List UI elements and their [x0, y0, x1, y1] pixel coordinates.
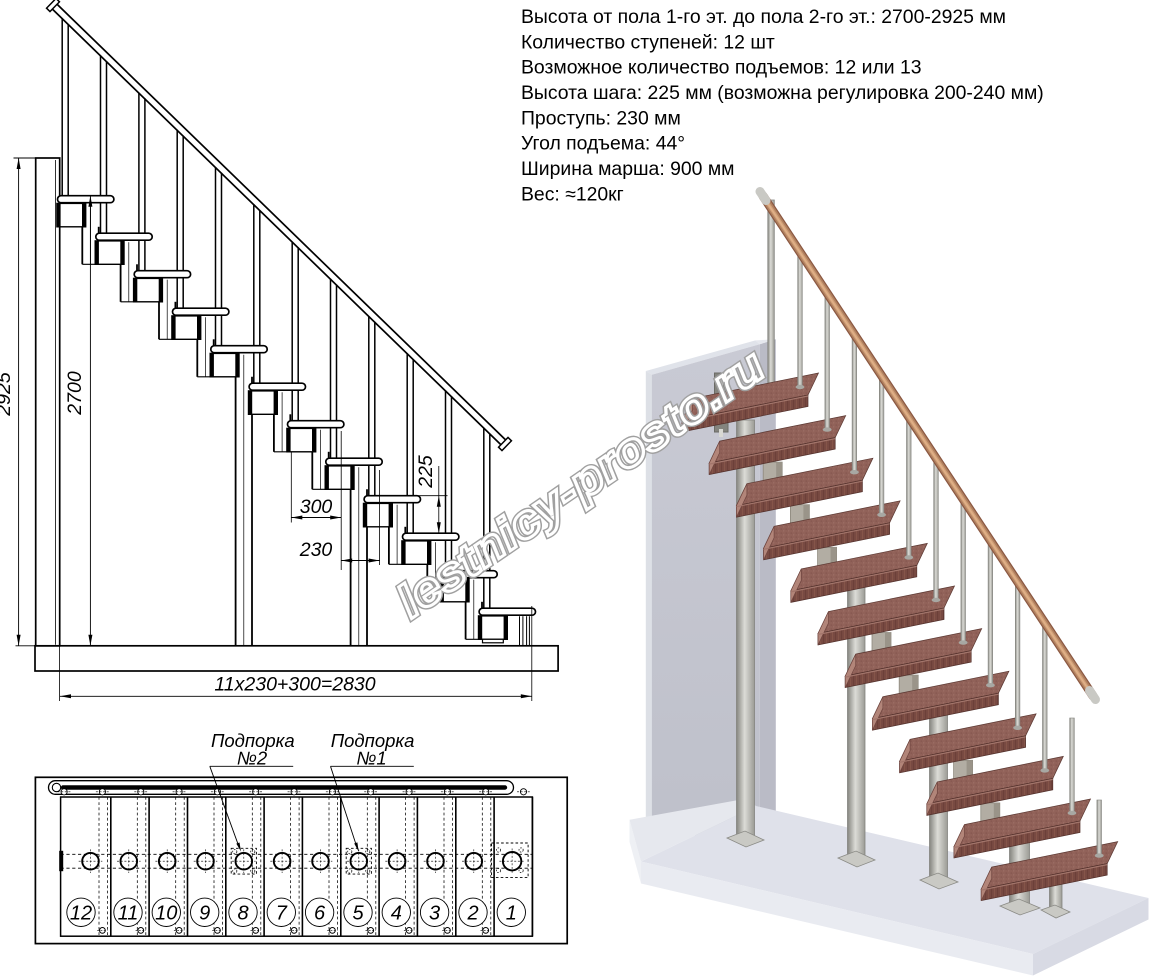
svg-text:11: 11	[118, 902, 139, 924]
svg-text:225: 225	[415, 455, 437, 489]
svg-text:1: 1	[506, 902, 517, 924]
svg-text:Угол подъема: 44°: Угол подъема: 44°	[521, 133, 685, 155]
svg-text:№1: №1	[356, 748, 386, 769]
svg-text:7: 7	[276, 902, 288, 924]
svg-text:8: 8	[237, 902, 248, 924]
svg-text:3: 3	[429, 902, 440, 924]
svg-text:Высота от пола 1-го эт. до пол: Высота от пола 1-го эт. до пола 2-го эт.…	[521, 6, 1006, 28]
svg-text:Проступь: 230 мм: Проступь: 230 мм	[521, 107, 681, 129]
svg-text:Возможное количество подъемов:: Возможное количество подъемов: 12 или 13	[521, 57, 922, 79]
svg-text:300: 300	[300, 496, 333, 518]
svg-text:Высота шага: 225 мм (возможна: Высота шага: 225 мм (возможна регулировк…	[521, 82, 1044, 104]
svg-text:230: 230	[299, 539, 333, 561]
svg-text:4: 4	[391, 902, 402, 924]
svg-text:2925: 2925	[0, 372, 15, 417]
svg-text:2: 2	[466, 902, 478, 924]
svg-text:№2: №2	[237, 748, 268, 769]
svg-text:9: 9	[199, 902, 210, 924]
svg-text:Количество ступеней: 12 шт: Количество ступеней: 12 шт	[521, 31, 775, 53]
svg-text:Ширина марша: 900 мм: Ширина марша: 900 мм	[521, 158, 735, 180]
svg-text:2700: 2700	[64, 371, 86, 416]
svg-text:5: 5	[352, 902, 364, 924]
svg-text:Вес: ≈120кг: Вес: ≈120кг	[521, 183, 624, 205]
svg-text:12: 12	[70, 902, 92, 924]
svg-text:6: 6	[314, 902, 326, 924]
svg-text:10: 10	[155, 902, 177, 924]
svg-text:11x230+300=2830: 11x230+300=2830	[214, 674, 375, 696]
